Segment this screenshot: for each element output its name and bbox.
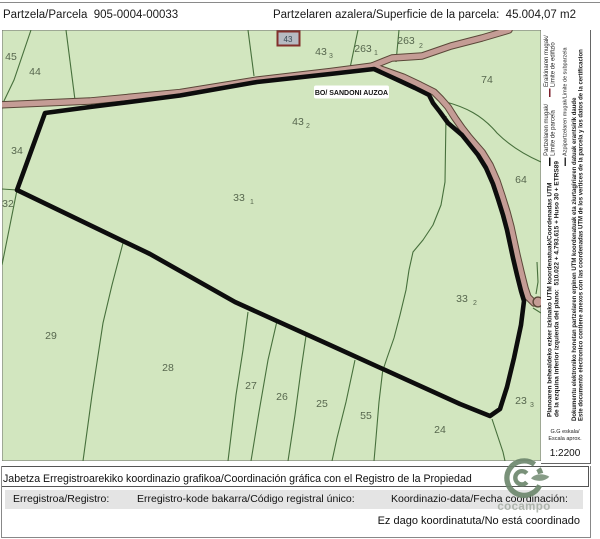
svg-text:2: 2 bbox=[473, 300, 477, 307]
svg-text:64: 64 bbox=[515, 174, 527, 186]
svg-text:BO/ SANDONI AUZOA: BO/ SANDONI AUZOA bbox=[315, 90, 388, 97]
svg-text:44: 44 bbox=[29, 66, 41, 78]
svg-text:33: 33 bbox=[456, 293, 468, 305]
svg-text:27: 27 bbox=[245, 380, 257, 392]
svg-text:55: 55 bbox=[360, 410, 372, 422]
svg-text:26: 26 bbox=[276, 391, 288, 403]
svg-text:74: 74 bbox=[481, 74, 493, 86]
svg-text:43: 43 bbox=[315, 46, 327, 58]
svg-text:2: 2 bbox=[306, 123, 310, 130]
svg-text:28: 28 bbox=[162, 362, 174, 374]
svg-text:23: 23 bbox=[515, 395, 527, 407]
svg-text:29: 29 bbox=[45, 330, 57, 342]
svg-text:33: 33 bbox=[233, 192, 245, 204]
svg-text:3: 3 bbox=[530, 402, 534, 409]
svg-text:32: 32 bbox=[2, 198, 14, 210]
svg-text:1: 1 bbox=[374, 50, 378, 57]
svg-text:24: 24 bbox=[434, 424, 446, 436]
svg-text:34: 34 bbox=[11, 145, 23, 157]
svg-text:25: 25 bbox=[316, 398, 328, 410]
svg-text:1: 1 bbox=[250, 199, 254, 206]
svg-text:45: 45 bbox=[5, 51, 17, 63]
svg-text:263: 263 bbox=[397, 35, 415, 47]
svg-text:3: 3 bbox=[329, 53, 333, 60]
svg-text:2: 2 bbox=[419, 43, 423, 50]
svg-text:263: 263 bbox=[354, 43, 372, 55]
svg-text:43: 43 bbox=[292, 116, 304, 128]
svg-text:43: 43 bbox=[284, 35, 293, 44]
